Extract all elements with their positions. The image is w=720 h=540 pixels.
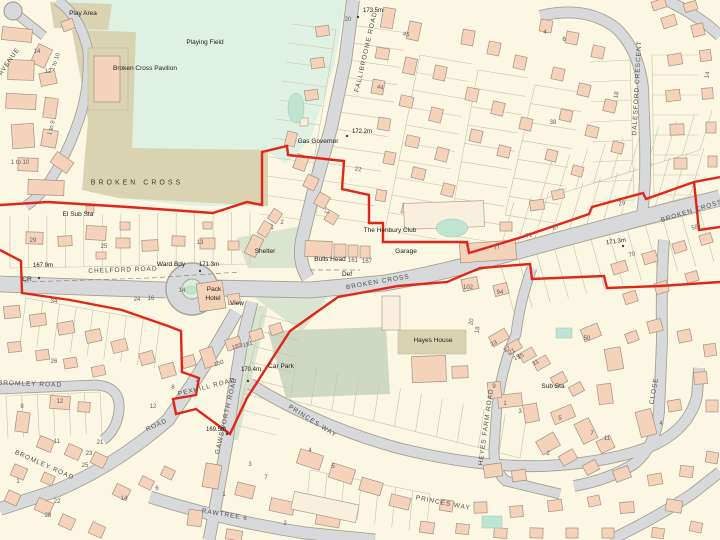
building xyxy=(389,494,411,510)
house-number: 44 xyxy=(376,84,384,91)
house-number: 18 xyxy=(474,326,481,334)
building xyxy=(587,495,601,507)
building xyxy=(603,99,617,113)
building xyxy=(699,232,713,245)
building xyxy=(64,443,83,460)
boundary-label-def: Def xyxy=(342,272,352,279)
building xyxy=(620,502,635,514)
house-number: 1 to 10 xyxy=(11,160,29,166)
place-label-playing-field: Playing Field xyxy=(186,40,223,47)
house-number: 23 xyxy=(86,451,93,457)
place-label-shelter: Shelter xyxy=(255,249,276,256)
spot-height: 172.2m xyxy=(352,129,372,135)
place-label-broken-cross: BROKEN CROSS xyxy=(91,180,183,187)
building xyxy=(382,296,400,330)
building xyxy=(428,107,443,123)
house-number: 4 xyxy=(659,421,662,427)
building xyxy=(547,499,562,511)
building xyxy=(672,240,687,253)
building xyxy=(474,502,487,513)
building xyxy=(500,222,512,231)
building xyxy=(78,402,91,413)
building xyxy=(611,260,629,275)
building xyxy=(487,41,501,56)
house-number: 14 xyxy=(704,71,711,79)
house-number: 14 xyxy=(34,49,41,55)
house-number: 16 xyxy=(148,296,155,302)
building xyxy=(111,338,128,353)
building xyxy=(88,522,106,539)
building xyxy=(568,382,584,397)
spot-height: 171.3m xyxy=(199,262,219,268)
building xyxy=(456,523,470,534)
place-label-gas-governor: Gas Governor xyxy=(298,139,339,146)
building xyxy=(58,236,73,247)
building xyxy=(625,330,640,344)
building xyxy=(529,199,544,211)
house-number: 12 xyxy=(57,399,64,405)
building xyxy=(120,222,130,230)
house-number: 12 xyxy=(150,404,157,410)
building xyxy=(383,151,396,165)
house-number: 6 xyxy=(243,516,246,522)
house-number: 8 xyxy=(171,385,174,391)
place-label-pack: Pack xyxy=(207,287,221,294)
building xyxy=(623,290,639,304)
building xyxy=(513,55,527,70)
building xyxy=(375,47,390,60)
house-number: 4 xyxy=(308,448,311,454)
building xyxy=(348,245,358,257)
building xyxy=(530,528,543,538)
building xyxy=(1,26,32,42)
house-number: 1 xyxy=(16,479,19,485)
house-number: 11 xyxy=(54,439,60,445)
building xyxy=(35,349,49,361)
house-number: 5 xyxy=(558,416,561,422)
building xyxy=(158,362,176,379)
building xyxy=(665,499,683,514)
building xyxy=(310,57,324,69)
place-label-pavilion: Broken Cross Pavilion xyxy=(113,66,177,73)
building xyxy=(116,238,130,248)
house-number: 9 xyxy=(492,384,495,390)
building xyxy=(172,236,185,246)
building xyxy=(566,528,578,538)
building xyxy=(699,49,711,61)
building xyxy=(689,521,703,533)
boundary-label-ward-bdy: Ward Bdy xyxy=(157,262,185,269)
building xyxy=(559,109,573,122)
house-number: 29 xyxy=(30,238,37,244)
building xyxy=(405,135,420,148)
house-number: 22 xyxy=(54,499,61,505)
building xyxy=(419,521,434,534)
house-number: 14 xyxy=(121,496,128,502)
building xyxy=(433,65,448,81)
house-number: 8 xyxy=(20,404,23,410)
building xyxy=(160,466,175,480)
house-number: 1 xyxy=(503,401,506,407)
building xyxy=(465,87,479,102)
building xyxy=(139,350,156,365)
house-number: 2 xyxy=(195,378,198,384)
building xyxy=(674,158,687,169)
house-number: 13 xyxy=(197,240,204,246)
house-number: 25 xyxy=(82,463,89,469)
building xyxy=(228,241,239,250)
roundabout-trees xyxy=(185,286,197,294)
road xyxy=(0,284,166,290)
house-number: 50 xyxy=(584,336,591,342)
house-number: 21 xyxy=(97,440,104,446)
spot-height: 167.9m xyxy=(33,263,53,269)
house-number: 20 xyxy=(345,17,352,23)
house-number: 3 xyxy=(248,462,251,468)
house-number: 6 xyxy=(562,37,565,43)
building xyxy=(452,366,468,379)
building xyxy=(665,89,680,101)
building xyxy=(511,469,526,482)
building xyxy=(94,56,120,102)
building xyxy=(703,343,717,357)
building xyxy=(497,145,511,159)
building xyxy=(412,355,447,382)
building xyxy=(96,252,106,259)
house-number: 3 xyxy=(518,409,521,415)
building xyxy=(602,528,614,538)
building xyxy=(86,225,107,240)
house-number: 167 xyxy=(362,259,372,265)
building xyxy=(647,473,663,486)
building xyxy=(10,464,27,480)
building xyxy=(15,411,31,433)
house-number: 45 xyxy=(402,31,410,38)
house-number: 6 xyxy=(155,486,158,492)
building xyxy=(29,313,47,327)
building xyxy=(6,93,37,110)
place-label-hayes-house: Hayes House xyxy=(413,338,452,345)
building xyxy=(694,372,708,385)
building xyxy=(651,527,664,539)
building xyxy=(523,403,540,423)
house-number: 1 xyxy=(222,492,225,498)
house-number: 28 xyxy=(45,513,52,519)
building xyxy=(651,0,667,11)
building xyxy=(706,400,718,412)
house-number: 34 xyxy=(51,299,58,305)
building xyxy=(677,329,692,343)
place-label-play-area: Play Area xyxy=(69,11,97,18)
building xyxy=(670,124,684,135)
place-label-garage: Garage xyxy=(395,249,417,256)
house-number: 7 xyxy=(590,431,593,437)
spot-height: 173.5m xyxy=(363,8,383,14)
building xyxy=(225,529,242,540)
building xyxy=(360,246,370,258)
house-number: 2 xyxy=(546,451,549,457)
building xyxy=(667,399,682,412)
place-label-sub-sta: Sub Sta xyxy=(541,384,564,391)
building xyxy=(28,179,65,195)
place-label-hotel: Hotel xyxy=(205,296,220,303)
boundary-label-cr: CR xyxy=(22,277,31,284)
building xyxy=(691,23,706,38)
building xyxy=(491,101,506,116)
building xyxy=(359,477,384,496)
building xyxy=(679,465,693,477)
building xyxy=(142,240,159,252)
building xyxy=(91,365,106,377)
cul-de-sac xyxy=(4,2,22,20)
house-number: 1 xyxy=(270,225,273,231)
building xyxy=(585,125,599,139)
building xyxy=(402,57,417,75)
building xyxy=(604,347,624,371)
building xyxy=(203,222,212,229)
building xyxy=(36,436,54,453)
building xyxy=(469,129,483,143)
place-label-bulls-head: Bulls Head xyxy=(314,257,345,264)
building xyxy=(550,404,575,424)
building xyxy=(483,463,503,478)
building xyxy=(377,117,391,131)
building xyxy=(85,329,102,344)
spot-height: 170.4m xyxy=(241,367,261,373)
place-label-el-sub-sta: El Sub Sta xyxy=(63,212,94,219)
building xyxy=(138,476,154,491)
building xyxy=(494,528,508,539)
house-number: 2 xyxy=(283,521,286,527)
house-number: 4 xyxy=(543,30,546,36)
building xyxy=(461,29,475,46)
building xyxy=(8,341,22,352)
house-number: 2 xyxy=(280,220,283,226)
building xyxy=(304,89,318,101)
building xyxy=(545,149,558,162)
house-number: 102 xyxy=(463,285,473,291)
building xyxy=(519,117,533,131)
building xyxy=(43,97,59,119)
house-number: 24 xyxy=(134,297,141,303)
house-number: 7 xyxy=(264,475,267,481)
building xyxy=(58,514,76,531)
house-number: 14 xyxy=(179,288,186,294)
house-number: 26 xyxy=(51,359,58,365)
building xyxy=(667,53,683,66)
place-label-car-park: Car Park xyxy=(268,364,294,371)
house-number: 20 xyxy=(468,318,475,326)
building xyxy=(57,321,75,336)
building xyxy=(685,270,699,283)
building xyxy=(702,88,714,100)
building xyxy=(574,418,598,445)
building xyxy=(705,451,719,464)
building xyxy=(315,25,329,37)
building xyxy=(577,83,591,97)
house-number: 22 xyxy=(354,166,362,173)
building xyxy=(708,156,717,167)
building xyxy=(611,141,624,154)
house-number: 25 xyxy=(101,244,108,250)
building xyxy=(591,45,605,59)
house-number: 11 xyxy=(604,436,610,442)
building xyxy=(11,123,35,148)
house-number: 5 xyxy=(331,464,334,470)
building xyxy=(435,147,450,163)
building xyxy=(411,167,426,181)
spot-height: 169.5m xyxy=(206,427,226,433)
place-label-henbury-club: The Henbury Club xyxy=(364,228,417,235)
building xyxy=(399,95,414,108)
house-number: 38 xyxy=(550,120,557,126)
house-number: 18 xyxy=(613,91,620,99)
building xyxy=(565,31,579,45)
building xyxy=(3,305,20,319)
building xyxy=(235,482,256,499)
map-canvas[interactable]: CHELFORD ROADBROKEN CROSSBROKEN CROSSFAL… xyxy=(0,0,720,540)
building xyxy=(510,506,524,518)
building xyxy=(441,183,456,198)
place-label-view: View xyxy=(230,301,244,308)
building xyxy=(551,67,565,81)
building xyxy=(706,122,716,133)
building xyxy=(597,383,614,405)
building xyxy=(63,357,78,369)
house-number: 161 xyxy=(348,258,358,264)
house-number: 94 xyxy=(497,290,504,296)
building xyxy=(661,14,678,29)
building xyxy=(375,189,387,202)
